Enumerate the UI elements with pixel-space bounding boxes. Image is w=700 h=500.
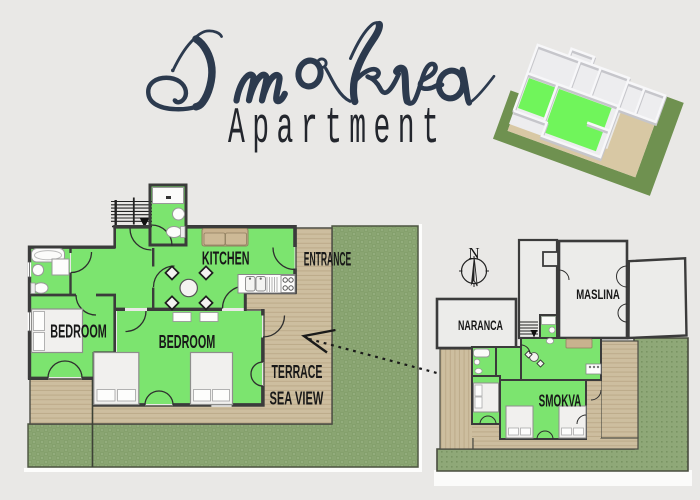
- svg-text:BEDROOM: BEDROOM: [159, 332, 215, 353]
- svg-text:SEA VIEW: SEA VIEW: [270, 389, 324, 410]
- svg-text:BEDROOM: BEDROOM: [50, 322, 106, 343]
- svg-text:TERRACE: TERRACE: [272, 362, 323, 383]
- svg-text:SMOKVA: SMOKVA: [539, 392, 582, 412]
- svg-text:N: N: [468, 246, 479, 263]
- svg-text:NARANCA: NARANCA: [458, 319, 503, 333]
- svg-text:Apartment: Apartment: [228, 101, 446, 158]
- svg-text:MASLINA: MASLINA: [576, 287, 620, 302]
- svg-text:KITCHEN: KITCHEN: [202, 249, 250, 270]
- svg-text:ENTRANCE: ENTRANCE: [304, 250, 352, 271]
